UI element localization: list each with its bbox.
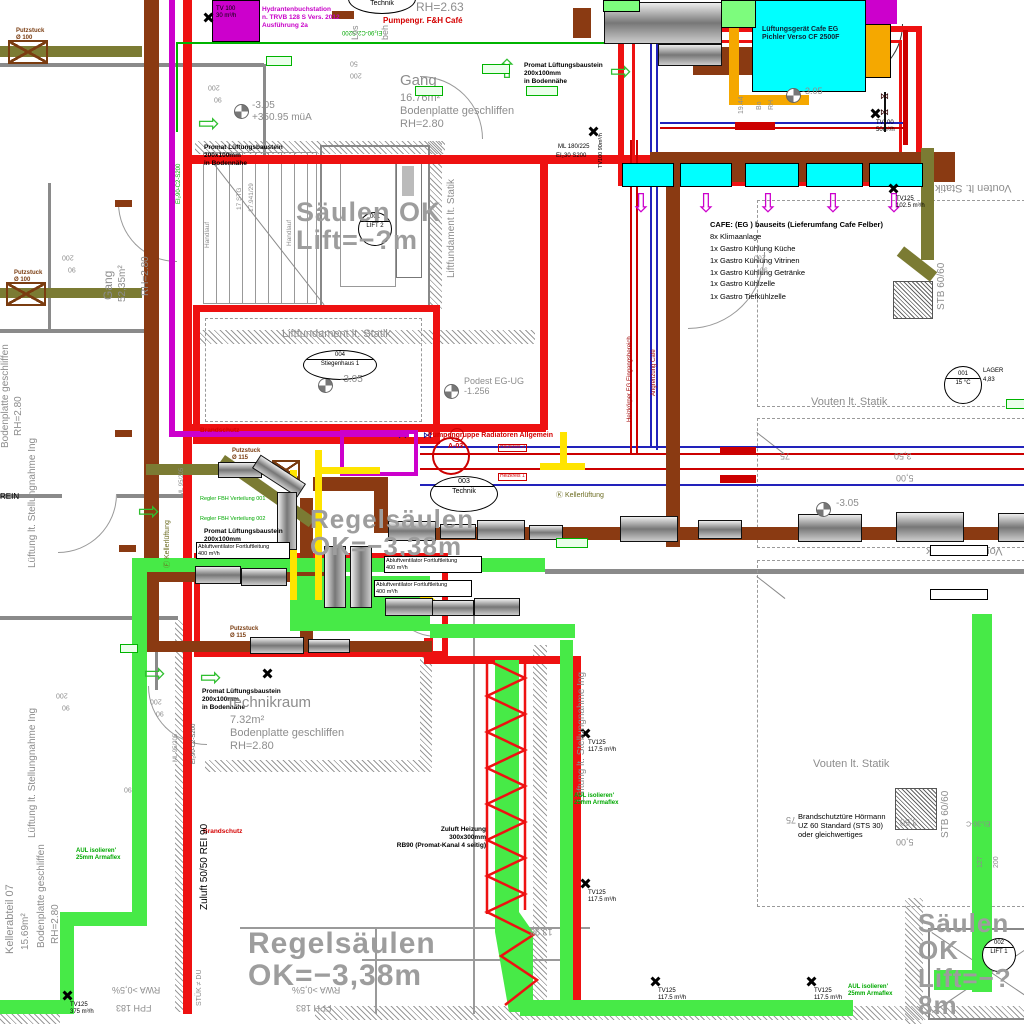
rwa-note: RWA >0,5%	[292, 984, 340, 995]
putzstueck-icon	[8, 40, 48, 64]
handrail-label: Handlauf	[286, 220, 294, 246]
duct-code-tag	[482, 64, 510, 74]
columns-note-1: Säulen OK Lift=−?m	[296, 198, 442, 255]
door-tag: ML 95/205	[173, 734, 180, 762]
room-number: 003	[431, 477, 497, 486]
fire-wall-red	[183, 0, 192, 1014]
flow-arrow-right-icon: ⇨	[138, 498, 160, 524]
floor-note-v: Bodenplatte geschliffen	[0, 344, 12, 448]
equipment-green	[721, 0, 756, 28]
voute-outline	[757, 200, 1024, 407]
duct-green-supply	[520, 1000, 853, 1016]
dim: 200	[754, 252, 766, 260]
room-name-technikraum: Technikraum	[226, 694, 311, 712]
fire-rating-line: EI₂90-C2-S200	[342, 28, 382, 35]
dim: 3,50	[894, 450, 912, 461]
partial-label: beh	[380, 25, 391, 40]
silencer	[798, 514, 862, 542]
dim: 90	[214, 94, 222, 102]
duct-green-supply	[132, 558, 147, 923]
vent-statement-note: Lüftung lt. Stellungnahme Ing	[27, 438, 39, 568]
silencer	[698, 520, 742, 539]
exhaust-fan-note: Abluftventilator Fortluftleitung 400 m³/…	[384, 556, 482, 573]
level-value: +350.95 müA	[252, 112, 312, 124]
heating-line-green	[176, 42, 178, 132]
silencer	[432, 600, 474, 616]
dim: 90	[760, 264, 768, 272]
silencer	[385, 598, 433, 616]
room-area-kellerabteil: 15.69m²	[20, 913, 32, 950]
fan-icon	[203, 12, 214, 23]
fan-icon	[650, 976, 661, 987]
wall	[0, 329, 150, 333]
fire-wall-red	[540, 162, 548, 430]
dim: 200	[208, 82, 220, 90]
fan-icon	[580, 878, 591, 889]
silencer	[620, 516, 678, 542]
cafe-note-line: 1x Gastro Kühlzelle	[710, 279, 775, 288]
dim: 5,00	[896, 836, 914, 847]
fph-note: FPH 183	[296, 1002, 332, 1013]
sprinkler-line	[169, 0, 175, 437]
column-label-stb: STB 60/60	[936, 263, 948, 310]
putzstueck-label: Putzstuck Ø 100	[16, 28, 44, 42]
door-tag: ML 180/225	[558, 144, 589, 151]
duct-brown-main	[144, 0, 159, 652]
fan-label: TV100 90m³/h	[598, 133, 605, 168]
fph-note: FPH 183	[116, 1002, 152, 1013]
cafe-note-title: CAFE: (EG ) bauseits (Lieferumfang Cafe …	[710, 220, 883, 229]
cooling-unit	[806, 163, 863, 187]
silencer	[896, 512, 964, 542]
supply-heating-note: Zuluft Heizung 300x300mm RB90 (Promat-Ka…	[380, 826, 486, 849]
silencer	[998, 513, 1024, 542]
lift-foundation-label: Liftfundament lt. Statik	[282, 328, 391, 341]
level-marker-icon	[786, 88, 801, 103]
fan-icon	[806, 976, 817, 987]
column-stb	[893, 281, 933, 319]
pipe-hot	[660, 127, 905, 129]
silencer	[658, 44, 722, 66]
insulation-note: AUL isolieren' 25mm Armaflex	[76, 848, 120, 862]
fan-icon	[62, 990, 73, 1001]
dim: 127	[977, 856, 985, 868]
heating-line-green	[176, 42, 606, 44]
level-value: -3.05	[340, 374, 363, 386]
room-height-gang2: RH=2.80	[140, 256, 152, 296]
exhaust-fan-note: Abluftventilator Fortluftleitung 400 m³/…	[196, 542, 290, 559]
silencer	[477, 520, 525, 540]
floor-plan-canvas: ⋈ ⋈ ⋈ ⋈	[0, 0, 1024, 1024]
room-height-label: RH=2.63	[416, 0, 464, 14]
cooling-unit	[745, 163, 799, 187]
cellar-vent-label: Ⓕ Kellerlüftung	[164, 520, 172, 568]
level-value: -3.05	[836, 498, 859, 510]
insulation-note: AUL isolieren' 25mm Armaflex	[848, 984, 892, 998]
room-name-kellerabteil: Kellerabteil 07	[4, 884, 17, 954]
columns-note-3: Regelsäulen OK=−3,38m	[310, 506, 474, 561]
shaft-note: STÜK ≠ DU	[196, 969, 204, 1006]
flow-arrow-right-icon: ⇨	[198, 110, 220, 136]
flow-arrow-right-icon: ⇨	[610, 58, 632, 84]
dim: 200	[350, 70, 362, 78]
room-area-gang2: 52,35m²	[117, 265, 129, 302]
duct-brown-riser	[666, 152, 680, 547]
height-note-v: RH=2.80	[13, 396, 25, 436]
fan-icon	[262, 668, 273, 679]
cafe-note-line: 1x Gastro Kühlung Getränke	[710, 268, 805, 277]
putzstueck-label: Putzstuck Ø 100	[14, 270, 42, 284]
room-temp: 15 °C	[945, 378, 981, 387]
duct-tag	[119, 545, 136, 552]
cooling-unit	[680, 163, 732, 187]
level-marker-icon	[816, 502, 831, 517]
duct-code-tag	[1006, 399, 1024, 409]
cafe-note-line: 8x Klimaanlage	[710, 232, 761, 241]
valve-icon: ⋈	[880, 108, 889, 117]
duct-tag	[115, 200, 132, 207]
supply-arrow-down-icon: ⇩	[695, 190, 717, 216]
fire-rating-line: EI₂90-C2-S200	[176, 164, 183, 204]
pipe-warm	[315, 467, 380, 474]
riser-label: Angrenzung Café	[651, 349, 658, 396]
vent-statement-note: Lüftung lt. Stellungnahme Ing	[576, 672, 588, 802]
promat-note: Promat Lüftungsbaustein 200x100mm in Bod…	[524, 62, 603, 85]
duct-code-tag	[120, 644, 138, 653]
hatched-wall	[420, 646, 432, 772]
columns-note-2: Säulen OK Lift=−?8m	[918, 910, 1024, 1019]
silencer	[195, 566, 241, 584]
room-area: 4,83	[983, 377, 995, 384]
ahu-label: Lüftungsgerät Cafe EG Pichler Verso CF 2…	[762, 26, 839, 43]
duct-code-tag	[526, 86, 558, 96]
room-info-gang: 16.76m² Bodenplatte geschliffen RH=2.80	[400, 92, 514, 132]
room-tag-lager: 001 15 °C	[944, 366, 982, 404]
riser-label: Heizkörper EG Eingangsbereich	[627, 336, 634, 422]
putzstueck-icon	[6, 282, 46, 306]
door-arc	[58, 494, 117, 553]
stair-count-label: 17 STG	[236, 188, 244, 210]
dim: 50	[350, 58, 358, 66]
hatched-wall	[205, 760, 432, 772]
cafe-note-line: 1x Gastro Tiefkühlzelle	[710, 292, 786, 301]
pump-group-title: Pumpengruppe Radiatoren Allgemein	[428, 432, 553, 440]
ahu-cafe-unit	[752, 0, 866, 92]
room-tag-technik-top: Technik	[348, 0, 416, 14]
stair-dim-label: 17.941/29	[248, 183, 256, 212]
dim: 200	[56, 690, 68, 698]
flow-arrow-right-icon: ⇨	[144, 660, 166, 686]
cooling-unit	[622, 163, 674, 187]
insulation-note: AUL isolieren' 25mm Armaflex	[574, 793, 618, 807]
pump-group-id: A-03	[448, 443, 463, 451]
podest-level: -1.256	[464, 386, 490, 397]
room-floor-kellerabteil: Bodenplatte geschliffen	[36, 844, 48, 948]
pipe-tag	[720, 475, 756, 483]
promat-note: Promat Lüftungsbaustein 200x100mm in Bod…	[204, 144, 283, 167]
fan-label: TV100 50m³/h	[876, 120, 895, 134]
room-name: Stiegenhaus 1	[304, 359, 376, 368]
pipe-warm	[540, 463, 585, 470]
valve-icon: ⋈	[880, 92, 889, 101]
room-name: Technik	[431, 486, 497, 496]
fan-icon	[888, 183, 899, 194]
voute-label: Vouten lt. Statik	[813, 758, 889, 771]
valve-tag	[930, 589, 988, 600]
pipe-hot	[420, 468, 1024, 470]
dim: 90	[62, 702, 70, 710]
door-tag: ML 95/205	[179, 468, 186, 496]
fire-rating-tag: EI₂30-C	[966, 818, 991, 826]
rwa-note: RWA >0,5%	[112, 984, 160, 995]
dim: 5,00	[896, 472, 914, 483]
pipe-cold	[660, 122, 905, 124]
vent-statement-note: Lüftung lt. Stellungnahme Ing	[27, 708, 39, 838]
heating-circuit-tag: Heizkreis 2	[498, 444, 527, 452]
fan-label: TV125 117.5 m³/h	[588, 740, 616, 754]
supply-arrow-down-icon: ⇩	[630, 190, 652, 216]
pipe-cold	[420, 484, 1024, 486]
duct-code-tag	[266, 56, 292, 66]
room-name-gang2: Gang	[101, 271, 115, 300]
level-marker-icon	[444, 384, 459, 399]
level-value: -3.05	[252, 100, 275, 112]
putzstueck-label: Putzstuck Ø 115	[230, 626, 258, 640]
pipe-tag	[720, 447, 756, 455]
room-height-kellerabteil: RH=2.80	[50, 904, 62, 944]
cafe-note-line: 1x Gastro Kühlung Küche	[710, 244, 795, 253]
column-label-stb: STB 60/60	[940, 791, 952, 838]
dim: 75	[780, 450, 790, 461]
fire-rating-line: EI₂90-C2-S200	[191, 724, 198, 764]
equipment-green	[603, 0, 640, 12]
duct-green-supply	[430, 624, 575, 638]
pipe-hot-riser	[903, 30, 908, 145]
partial-label: Bo	[756, 101, 764, 110]
partial-label: REIN	[0, 492, 19, 502]
fan-label: TV125 117.5 m³/h	[814, 988, 842, 1002]
cellar-vent-label: Ⓚ Kellerlüftung	[556, 492, 604, 500]
partial-label: Lös	[350, 25, 361, 40]
exhaust-fan-note: Abluftventilator Fortluftleitung 400 m³/…	[374, 580, 472, 597]
partial-label: RH	[768, 100, 776, 110]
regulator-label: Regler FBH Verteilung 002	[200, 516, 265, 523]
columns-note-4: Regelsäulen OK=−3,38m	[248, 928, 436, 991]
room-name: LAGER	[983, 368, 1003, 375]
duct-orange	[729, 26, 739, 104]
dim: 75	[786, 814, 796, 825]
lift-foundation-label-v: Liftfundament lt. Statik	[446, 179, 458, 278]
lift-machine	[402, 166, 414, 196]
wall	[48, 183, 51, 331]
dim: 200	[993, 856, 1001, 868]
duct-green-supply	[0, 1000, 74, 1014]
fan-label: TV125 117.5 m³/h	[658, 988, 686, 1002]
supply-arrow-down-icon: ⇩	[757, 190, 779, 216]
handrail-label: Handlauf	[204, 222, 212, 248]
silencer	[241, 568, 287, 586]
fire-protection-label: Brandschutz	[200, 427, 239, 435]
level-value: -3.05	[802, 86, 823, 97]
fan-label: TV125 375 m³/h	[70, 1002, 94, 1016]
duct-tag	[115, 430, 132, 437]
hydrant-note: Hydrantenbuchstation n. TRVB 128 S Vers.…	[262, 6, 340, 29]
fan-label: TV 100 30 m³/h	[216, 6, 236, 20]
fan-label: TV125 102.5 m³/h	[896, 196, 925, 210]
supply-arrow-down-icon: ⇩	[822, 190, 844, 216]
pipe-tag	[735, 122, 775, 130]
silencer	[308, 639, 350, 653]
supply-shaft-label: Zuluft 50/50 REI 90	[199, 824, 211, 910]
level-marker-icon	[318, 378, 333, 393]
fire-door-note: Brandschutztüre Hörmann UZ 60 Standard (…	[798, 812, 886, 839]
fire-rating-tag: EI₂30 S200	[556, 153, 586, 160]
duct-code-tag	[415, 86, 443, 96]
valve-tag	[930, 545, 988, 556]
putzstueck-label: Putzstuck Ø 115	[232, 448, 260, 462]
dim: 200	[62, 252, 74, 260]
flow-arrow-right-icon: ⇨	[200, 664, 222, 690]
dim: 3,50	[900, 816, 918, 827]
level-marker-icon	[234, 104, 249, 119]
dim: 90	[156, 708, 164, 716]
dim: 19.44	[738, 96, 746, 114]
fan-label: TV125 117.5 m³/h	[588, 890, 616, 904]
dim: 90	[124, 784, 132, 792]
voute-label: Vouten lt. Statik	[811, 396, 887, 409]
dim: 90	[68, 264, 76, 272]
silencer	[474, 598, 520, 616]
room-info-technikraum: 7.32m² Bodenplatte geschliffen RH=2.80	[230, 714, 344, 754]
duct-code-tag	[556, 538, 588, 548]
dim: 13.98	[530, 926, 553, 937]
room-name: Technik	[349, 0, 415, 8]
pump-group-label: Pumpengr. F&H Café	[383, 16, 463, 26]
duct-green-riser	[560, 640, 573, 1014]
regulator-label: Regler FBH Verteilung 001	[200, 496, 265, 503]
equipment-brown	[573, 8, 591, 38]
fan-icon	[870, 108, 881, 119]
heating-circuit-tag: Heizkreis 1	[498, 473, 527, 481]
dim: 200	[150, 696, 162, 704]
voute-label: Vouten lt. Statik	[935, 181, 1011, 194]
